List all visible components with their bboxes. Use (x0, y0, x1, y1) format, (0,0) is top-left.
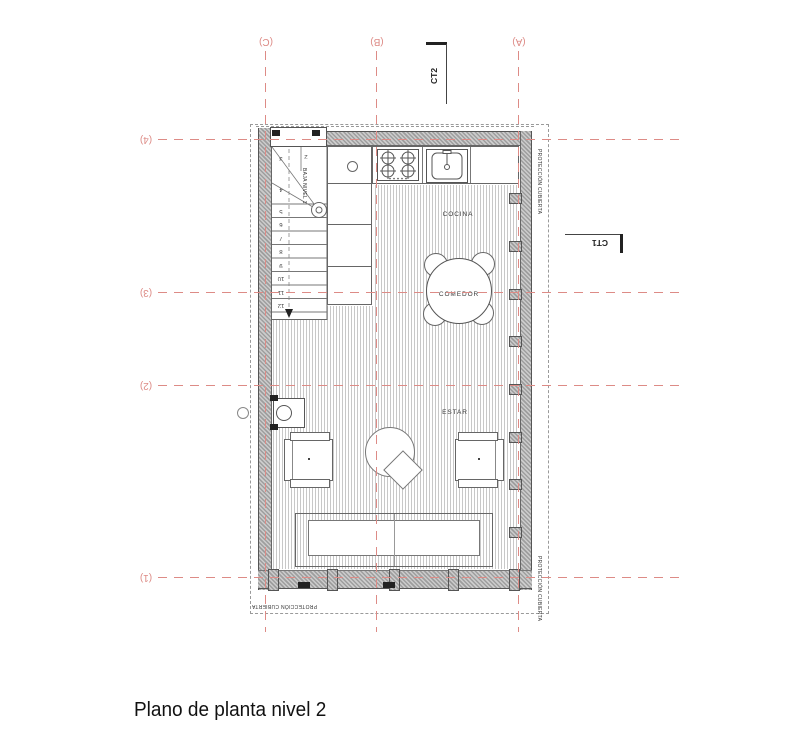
facade-fin (509, 289, 522, 300)
stair-step-number: 9 (275, 260, 287, 269)
stove-clip (270, 424, 278, 430)
counter-divider (470, 147, 471, 183)
grid-line-1 (158, 577, 683, 578)
facade-fin (509, 193, 522, 204)
cabinet-knob (347, 161, 358, 172)
facade-fin (509, 479, 522, 490)
stair-step-number: 3 (275, 153, 287, 162)
facade-fin (509, 527, 522, 538)
stair-step-number: 12 (275, 300, 287, 309)
armchair-left (284, 432, 336, 488)
section-marker-ct1-tick (620, 234, 623, 253)
window-clip (312, 130, 320, 136)
grid-bubble-3: (3) (133, 285, 159, 299)
armchair-arm (290, 432, 330, 441)
floor-plan-sheet: 2 3 4 5 6 7 8 9 10 11 12 BAJA NIVEL 1 (0, 0, 800, 745)
stair-step-number: 7 (275, 233, 287, 242)
armchair-arm (458, 479, 498, 488)
facade-fin (509, 241, 522, 252)
armchair-dot (478, 458, 480, 460)
room-label-estar: ESTAR (435, 409, 475, 416)
roof-protection-label-right-bottom: PROTECCIÓN CUBIERTA (536, 556, 542, 602)
grid-bubble-4: (4) (133, 132, 159, 146)
cabinet-shelf-line (328, 266, 371, 267)
armchair-back-line (292, 441, 293, 479)
grid-bubble-b: (B) (364, 34, 390, 48)
section-marker-ct2-line (446, 44, 447, 104)
stair-step-number: 5 (275, 206, 287, 215)
armchair-arm (290, 479, 330, 488)
armchair-arm (458, 432, 498, 441)
cabinet-shelf-line (328, 224, 371, 225)
grid-bubble-1: (1) (133, 570, 159, 584)
grid-bubble-2: (2) (133, 378, 159, 392)
room-label-cocina: COCINA (434, 211, 482, 218)
roof-protection-label-bottom: PROTECCIÓN CUBIERTA (259, 602, 317, 609)
grid-bubble-a: (A) (506, 34, 532, 48)
stair-step-number: 6 (275, 219, 287, 228)
stair-step-number: 4 (275, 184, 287, 193)
kitchen-sink (426, 149, 468, 183)
sofa-divider (394, 514, 395, 566)
grid-line-3 (158, 292, 683, 293)
armchair-right (452, 432, 504, 488)
mullion (448, 569, 459, 591)
grid-line-2 (158, 385, 683, 386)
facade-fin (509, 432, 522, 443)
stair-direction-note: BAJA NIVEL 1 (300, 168, 307, 232)
page-title: Plano de planta nivel 2 (134, 699, 326, 722)
grid-line-4 (158, 139, 683, 140)
section-marker-ct2-tick (426, 42, 447, 45)
window-clip (272, 130, 280, 136)
stair-step-number: 8 (275, 246, 287, 255)
section-marker-ct2-label: CT2 (429, 52, 441, 84)
wood-stove-door (276, 405, 292, 421)
door-clip (298, 582, 310, 588)
section-marker-ct1-label: CT1 (583, 237, 617, 248)
armchair-body (455, 439, 504, 481)
stove-cooktop (377, 149, 419, 181)
section-marker-ct1-line (565, 234, 621, 235)
grid-bubble-c: (C) (253, 34, 279, 48)
mullion (268, 569, 279, 591)
stove-clip (270, 395, 278, 401)
facade-fin (509, 336, 522, 347)
stair-step-number: 10 (275, 273, 287, 282)
roof-protection-label-right-top: PROTECCIÓN CUBIERTA (536, 149, 542, 195)
counter-divider (422, 147, 423, 183)
mullion (327, 569, 338, 591)
cabinet-shelf-line (328, 183, 371, 184)
flue-circle (237, 407, 249, 419)
door-clip (383, 582, 395, 588)
armchair-back-line (495, 441, 496, 479)
stair-step-number: 2 (300, 151, 312, 160)
armchair-dot (308, 458, 310, 460)
